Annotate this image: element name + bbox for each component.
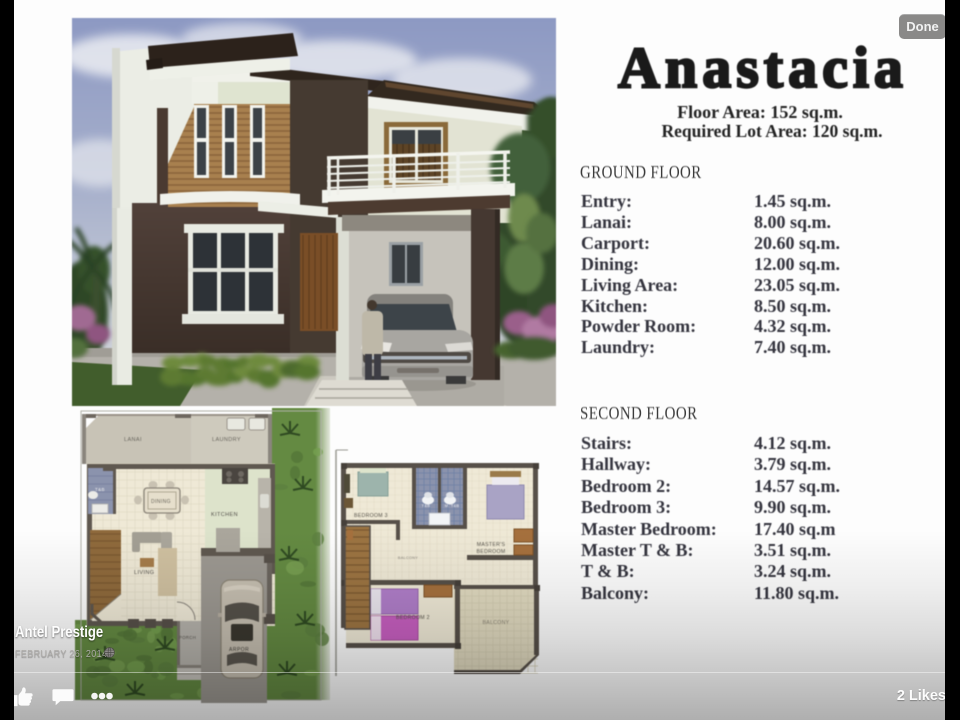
svg-text:LAUNDRY: LAUNDRY: [212, 437, 241, 443]
svg-text:M. T&B: M. T&B: [445, 504, 460, 508]
svg-text:PORCH: PORCH: [179, 635, 196, 640]
svg-text:T&B: T&B: [95, 487, 105, 492]
svg-text:KITCHEN: KITCHEN: [211, 512, 238, 518]
svg-text:BALCONY: BALCONY: [398, 556, 418, 560]
svg-text:LIVING: LIVING: [134, 570, 154, 576]
svg-text:T&B: T&B: [422, 503, 431, 508]
svg-text:BEDROOM 2: BEDROOM 2: [396, 615, 430, 621]
svg-text:BALCONY: BALCONY: [483, 620, 510, 626]
svg-text:DINING: DINING: [151, 499, 171, 505]
svg-text:ARPOR: ARPOR: [229, 647, 249, 653]
svg-text:BEDROOM: BEDROOM: [477, 549, 506, 555]
svg-text:MASTER'S: MASTER'S: [477, 542, 506, 548]
svg-text:BEDROOM 3: BEDROOM 3: [354, 513, 388, 519]
svg-text:LANAI: LANAI: [124, 437, 142, 443]
